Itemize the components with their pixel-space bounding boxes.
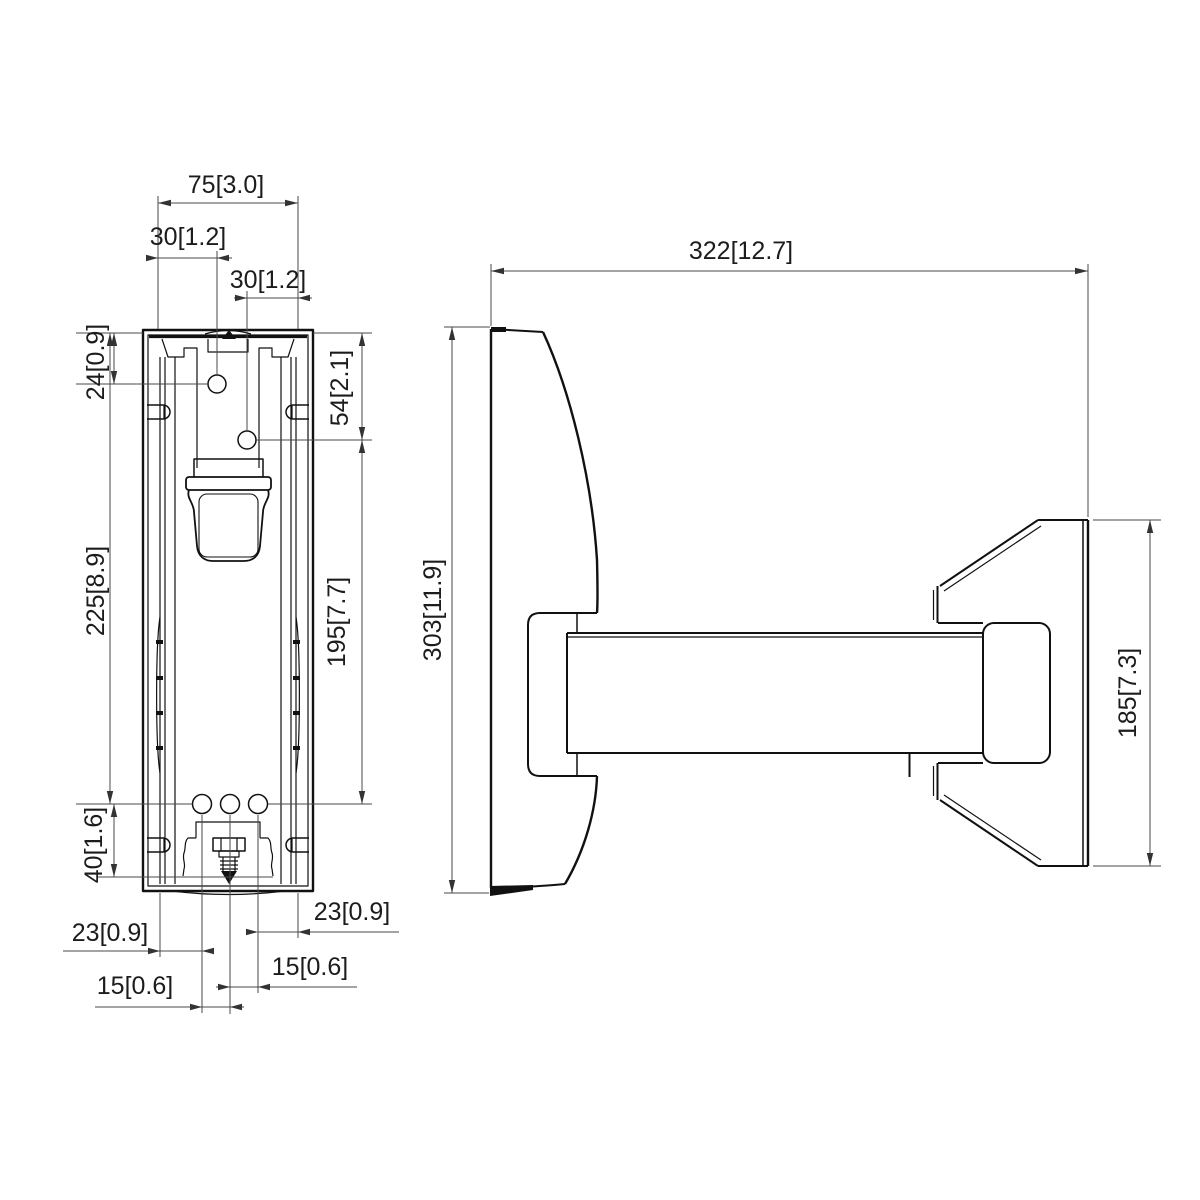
dim-label-front-hole2-offset: 30[1.2] bbox=[230, 266, 306, 294]
front-hole-upper bbox=[208, 375, 226, 393]
side-tv-bracket bbox=[934, 520, 1089, 866]
technical-drawing-canvas: 75[3.0] 30[1.2] 30[1.2] 24[0.9] 225[8.9] bbox=[0, 0, 1200, 1200]
dim-label-front-bottom-right-23: 23[0.9] bbox=[314, 898, 390, 926]
side-view-dimensions: 322[12.7] 303[11.9] 185[7.3] bbox=[419, 237, 1161, 893]
front-top-cutouts bbox=[162, 339, 294, 357]
dim-label-front-top-width: 75[3.0] bbox=[188, 171, 264, 199]
front-hook-bucket bbox=[186, 459, 271, 561]
dim-label-front-hole1-depth: 24[0.9] bbox=[82, 324, 110, 400]
front-bottom-holes bbox=[193, 795, 268, 814]
front-plate-inner-wall bbox=[148, 335, 308, 886]
technical-drawing-page: 75[3.0] 30[1.2] 30[1.2] 24[0.9] 225[8.9] bbox=[0, 0, 1200, 1200]
dim-label-front-plate-height: 225[8.9] bbox=[82, 546, 110, 636]
front-clip-tabs bbox=[147, 405, 309, 852]
side-hinge-knuckle bbox=[983, 623, 1050, 763]
front-inner-rails bbox=[160, 357, 296, 884]
side-wall-plate bbox=[490, 327, 598, 896]
dim-label-front-bottom-left-23: 23[0.9] bbox=[72, 919, 148, 947]
dim-label-front-hole1-offset: 30[1.2] bbox=[150, 223, 226, 251]
dim-label-front-bottom-left-15: 15[0.6] bbox=[97, 972, 173, 1000]
dim-label-front-bottom-offset: 40[1.6] bbox=[80, 807, 108, 883]
dim-label-side-depth: 322[12.7] bbox=[689, 237, 793, 265]
dim-label-side-wall-plate-height: 303[11.9] bbox=[419, 559, 447, 661]
front-bottom-clamp bbox=[183, 822, 273, 884]
front-hole-lower bbox=[238, 431, 256, 449]
dim-label-front-bottom-right-15: 15[0.6] bbox=[272, 953, 348, 981]
dim-label-front-hole2-depth: 54[2.1] bbox=[326, 350, 354, 426]
side-arm bbox=[567, 633, 983, 777]
front-side-slots bbox=[156, 617, 300, 773]
side-bottom-pad bbox=[490, 885, 533, 896]
screw-head bbox=[213, 838, 245, 851]
dim-label-side-bracket-height: 185[7.3] bbox=[1114, 648, 1142, 738]
dim-label-front-hole-span: 195[7.7] bbox=[323, 577, 351, 667]
front-view-dimensions: 75[3.0] 30[1.2] 30[1.2] 24[0.9] 225[8.9] bbox=[63, 171, 399, 1014]
front-view-wall-plate bbox=[143, 330, 313, 895]
side-view-mount bbox=[490, 327, 1088, 896]
front-plate-outline bbox=[143, 330, 313, 891]
side-top-pad bbox=[491, 327, 506, 332]
